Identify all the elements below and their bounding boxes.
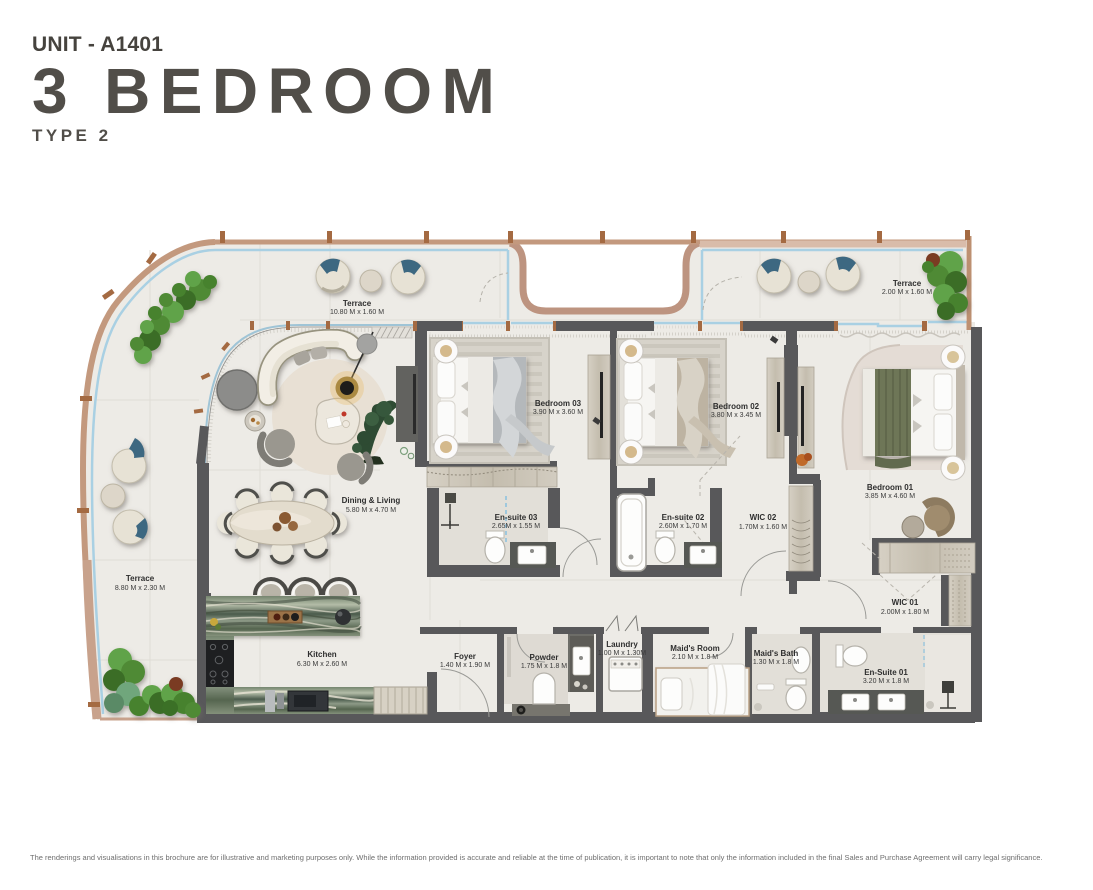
svg-text:Terrace: Terrace <box>343 299 372 308</box>
svg-text:6.30 M x 2.60 M: 6.30 M x 2.60 M <box>297 661 347 668</box>
svg-text:WIC 01: WIC 01 <box>892 598 919 607</box>
svg-text:1.70M x 1.60 M: 1.70M x 1.60 M <box>739 524 787 531</box>
svg-text:1.40 M x 1.90 M: 1.40 M x 1.90 M <box>440 662 490 669</box>
svg-text:Terrace: Terrace <box>893 279 922 288</box>
svg-text:2.00 M x 1.60 M: 2.00 M x 1.60 M <box>882 289 932 296</box>
svg-text:2.00M x 1.80 M: 2.00M x 1.80 M <box>881 609 929 616</box>
svg-text:Kitchen: Kitchen <box>307 650 336 659</box>
svg-text:3.90 M x 3.60 M: 3.90 M x 3.60 M <box>533 409 583 416</box>
svg-text:2.10 M x 1.8 M: 2.10 M x 1.8 M <box>672 654 718 661</box>
svg-text:Bedroom 02: Bedroom 02 <box>713 402 760 411</box>
svg-text:Maid's Room: Maid's Room <box>670 644 719 653</box>
svg-text:8.80 M x 2.30 M: 8.80 M x 2.30 M <box>115 585 165 592</box>
svg-text:2.60M x 1.70 M: 2.60M x 1.70 M <box>659 523 707 530</box>
svg-text:5.80 M x 4.70 M: 5.80 M x 4.70 M <box>346 507 396 514</box>
svg-text:1.30 M x 1.8 M: 1.30 M x 1.8 M <box>753 659 799 666</box>
svg-text:En-suite 02: En-suite 02 <box>662 513 705 522</box>
svg-text:Bedroom 03: Bedroom 03 <box>535 399 582 408</box>
svg-text:3.20 M x 1.8 M: 3.20 M x 1.8 M <box>863 678 909 685</box>
svg-text:Foyer: Foyer <box>454 652 476 661</box>
svg-text:1.00 M x 1.30M: 1.00 M x 1.30M <box>598 650 646 657</box>
svg-text:Bedroom 01: Bedroom 01 <box>867 483 914 492</box>
svg-text:3.85 M x 4.60 M: 3.85 M x 4.60 M <box>865 493 915 500</box>
svg-text:En-Suite 01: En-Suite 01 <box>864 668 908 677</box>
svg-text:En-suite 03: En-suite 03 <box>495 513 538 522</box>
svg-text:Terrace: Terrace <box>126 574 155 583</box>
svg-text:Laundry: Laundry <box>606 640 638 649</box>
svg-text:WIC 02: WIC 02 <box>750 513 777 522</box>
svg-text:10.80 M x 1.60 M: 10.80 M x 1.60 M <box>330 309 384 316</box>
svg-text:Maid's Bath: Maid's Bath <box>754 649 799 658</box>
svg-text:Dining & Living: Dining & Living <box>342 496 401 505</box>
svg-text:Powder: Powder <box>530 653 559 662</box>
svg-text:3.80 M x 3.45 M: 3.80 M x 3.45 M <box>711 412 761 419</box>
svg-text:1.75 M x 1.8 M: 1.75 M x 1.8 M <box>521 663 567 670</box>
svg-text:2.65M x 1.55 M: 2.65M x 1.55 M <box>492 523 540 530</box>
